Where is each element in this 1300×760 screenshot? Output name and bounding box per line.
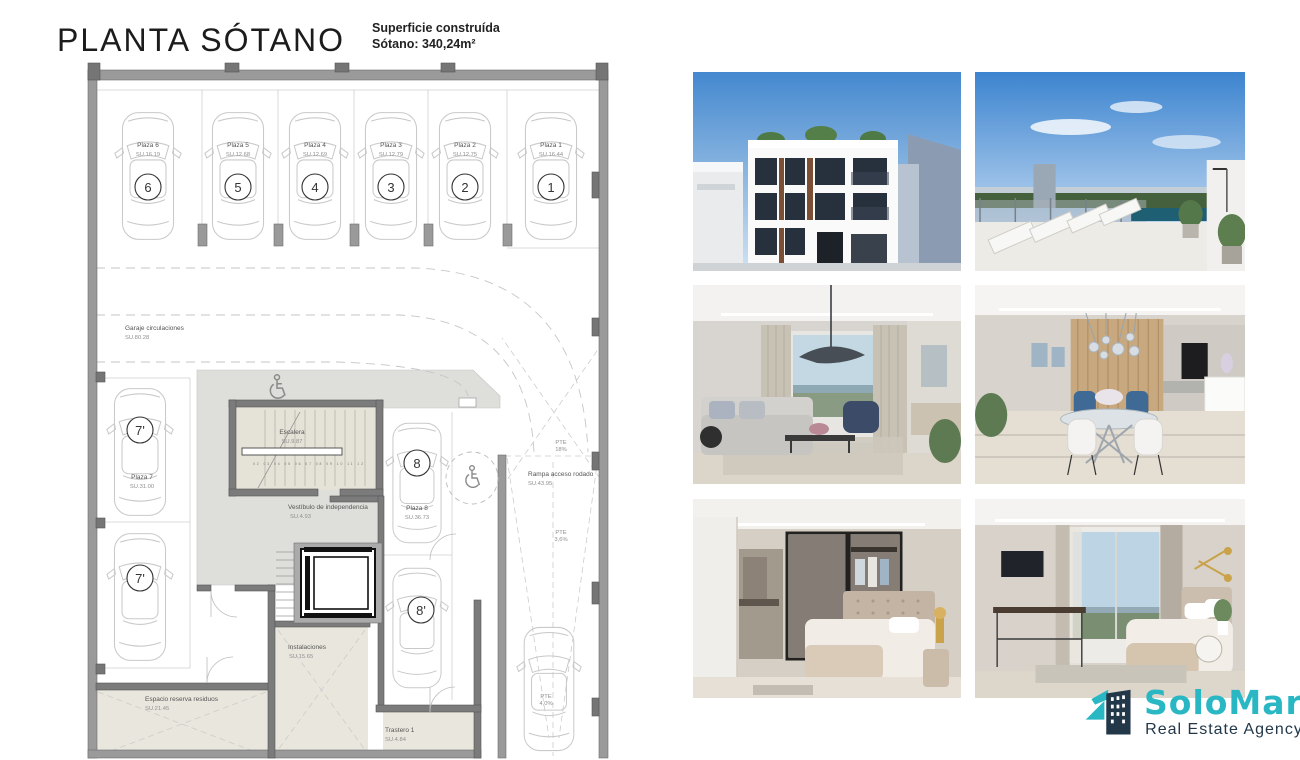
svg-text:SU.12.69: SU.12.69 [303,152,327,158]
svg-text:18%: 18% [555,447,567,453]
photo-bedroom-closet [693,499,961,698]
svg-text:Escalera: Escalera [279,429,305,436]
svg-text:SU.12.79: SU.12.79 [379,152,403,158]
basement-floor-plan: 02 03 04 05 06 07 08 09 10 11 12 Plaza 6… [0,0,680,760]
agency-logo-icon [1082,686,1138,742]
photo-building-facade [693,72,961,271]
agency-brand-name: SoloMar [1144,686,1300,719]
svg-text:8': 8' [416,603,426,618]
svg-text:SU.4.84: SU.4.84 [385,737,407,743]
svg-text:Garaje circulaciones: Garaje circulaciones [125,325,185,332]
svg-text:PTE: PTE [540,694,551,700]
photo-living-room [693,285,961,484]
photo-rooftop-terrace [975,72,1245,271]
svg-text:6: 6 [144,180,151,195]
wheelchair-icon-ramp [466,466,480,488]
svg-text:Vestíbulo de independencia: Vestíbulo de independencia [288,504,368,511]
svg-text:PTE: PTE [555,530,566,536]
svg-text:SU.9.87: SU.9.87 [282,439,303,445]
svg-text:Plaza 4: Plaza 4 [304,142,326,149]
svg-text:Plaza 1: Plaza 1 [540,142,562,149]
svg-text:2: 2 [461,180,468,195]
photo-bedroom-sea-view [975,499,1245,698]
svg-text:Plaza 2: Plaza 2 [454,142,476,149]
agency-tagline: Real Estate Agency [1145,721,1300,739]
svg-text:Trastero 1: Trastero 1 [385,727,415,734]
svg-text:3: 3 [387,180,394,195]
svg-text:SU.15.65: SU.15.65 [289,654,313,660]
photo-dining-kitchen [975,285,1245,484]
svg-text:3,6%: 3,6% [554,537,567,543]
svg-text:SU.12.68: SU.12.68 [226,152,250,158]
svg-text:SU.21.45: SU.21.45 [145,706,169,712]
svg-text:Rampa acceso rodado: Rampa acceso rodado [528,471,594,478]
svg-text:Plaza 6: Plaza 6 [137,142,159,149]
svg-text:Plaza 8: Plaza 8 [406,505,428,512]
svg-text:4: 4 [311,180,318,195]
svg-text:4,0%: 4,0% [539,701,552,707]
svg-text:PTE: PTE [555,440,566,446]
svg-text:SU.36.73: SU.36.73 [405,515,429,521]
svg-text:Plaza 5: Plaza 5 [227,142,249,149]
agency-logo: SoloMar Real Estate Agency [1082,686,1300,742]
svg-text:Instalaciones: Instalaciones [288,644,327,651]
svg-text:SU.16.44: SU.16.44 [539,152,564,158]
svg-text:5: 5 [234,180,241,195]
svg-text:Plaza 3: Plaza 3 [380,142,402,149]
svg-text:7': 7' [135,423,145,438]
svg-text:SU.31.00: SU.31.00 [130,484,154,490]
svg-text:SU.16.19: SU.16.19 [136,152,160,158]
svg-text:SU.4.93: SU.4.93 [290,514,311,520]
svg-text:SU.43.95: SU.43.95 [528,481,552,487]
svg-text:7': 7' [135,571,145,586]
svg-text:Espacio reserva residuos: Espacio reserva residuos [145,696,219,703]
svg-text:1: 1 [547,180,554,195]
svg-text:Plaza 7: Plaza 7 [131,474,153,481]
elevator [294,543,382,623]
svg-text:8: 8 [413,456,420,471]
svg-text:SU.12.75: SU.12.75 [453,152,477,158]
svg-text:SU.80.28: SU.80.28 [125,335,149,341]
